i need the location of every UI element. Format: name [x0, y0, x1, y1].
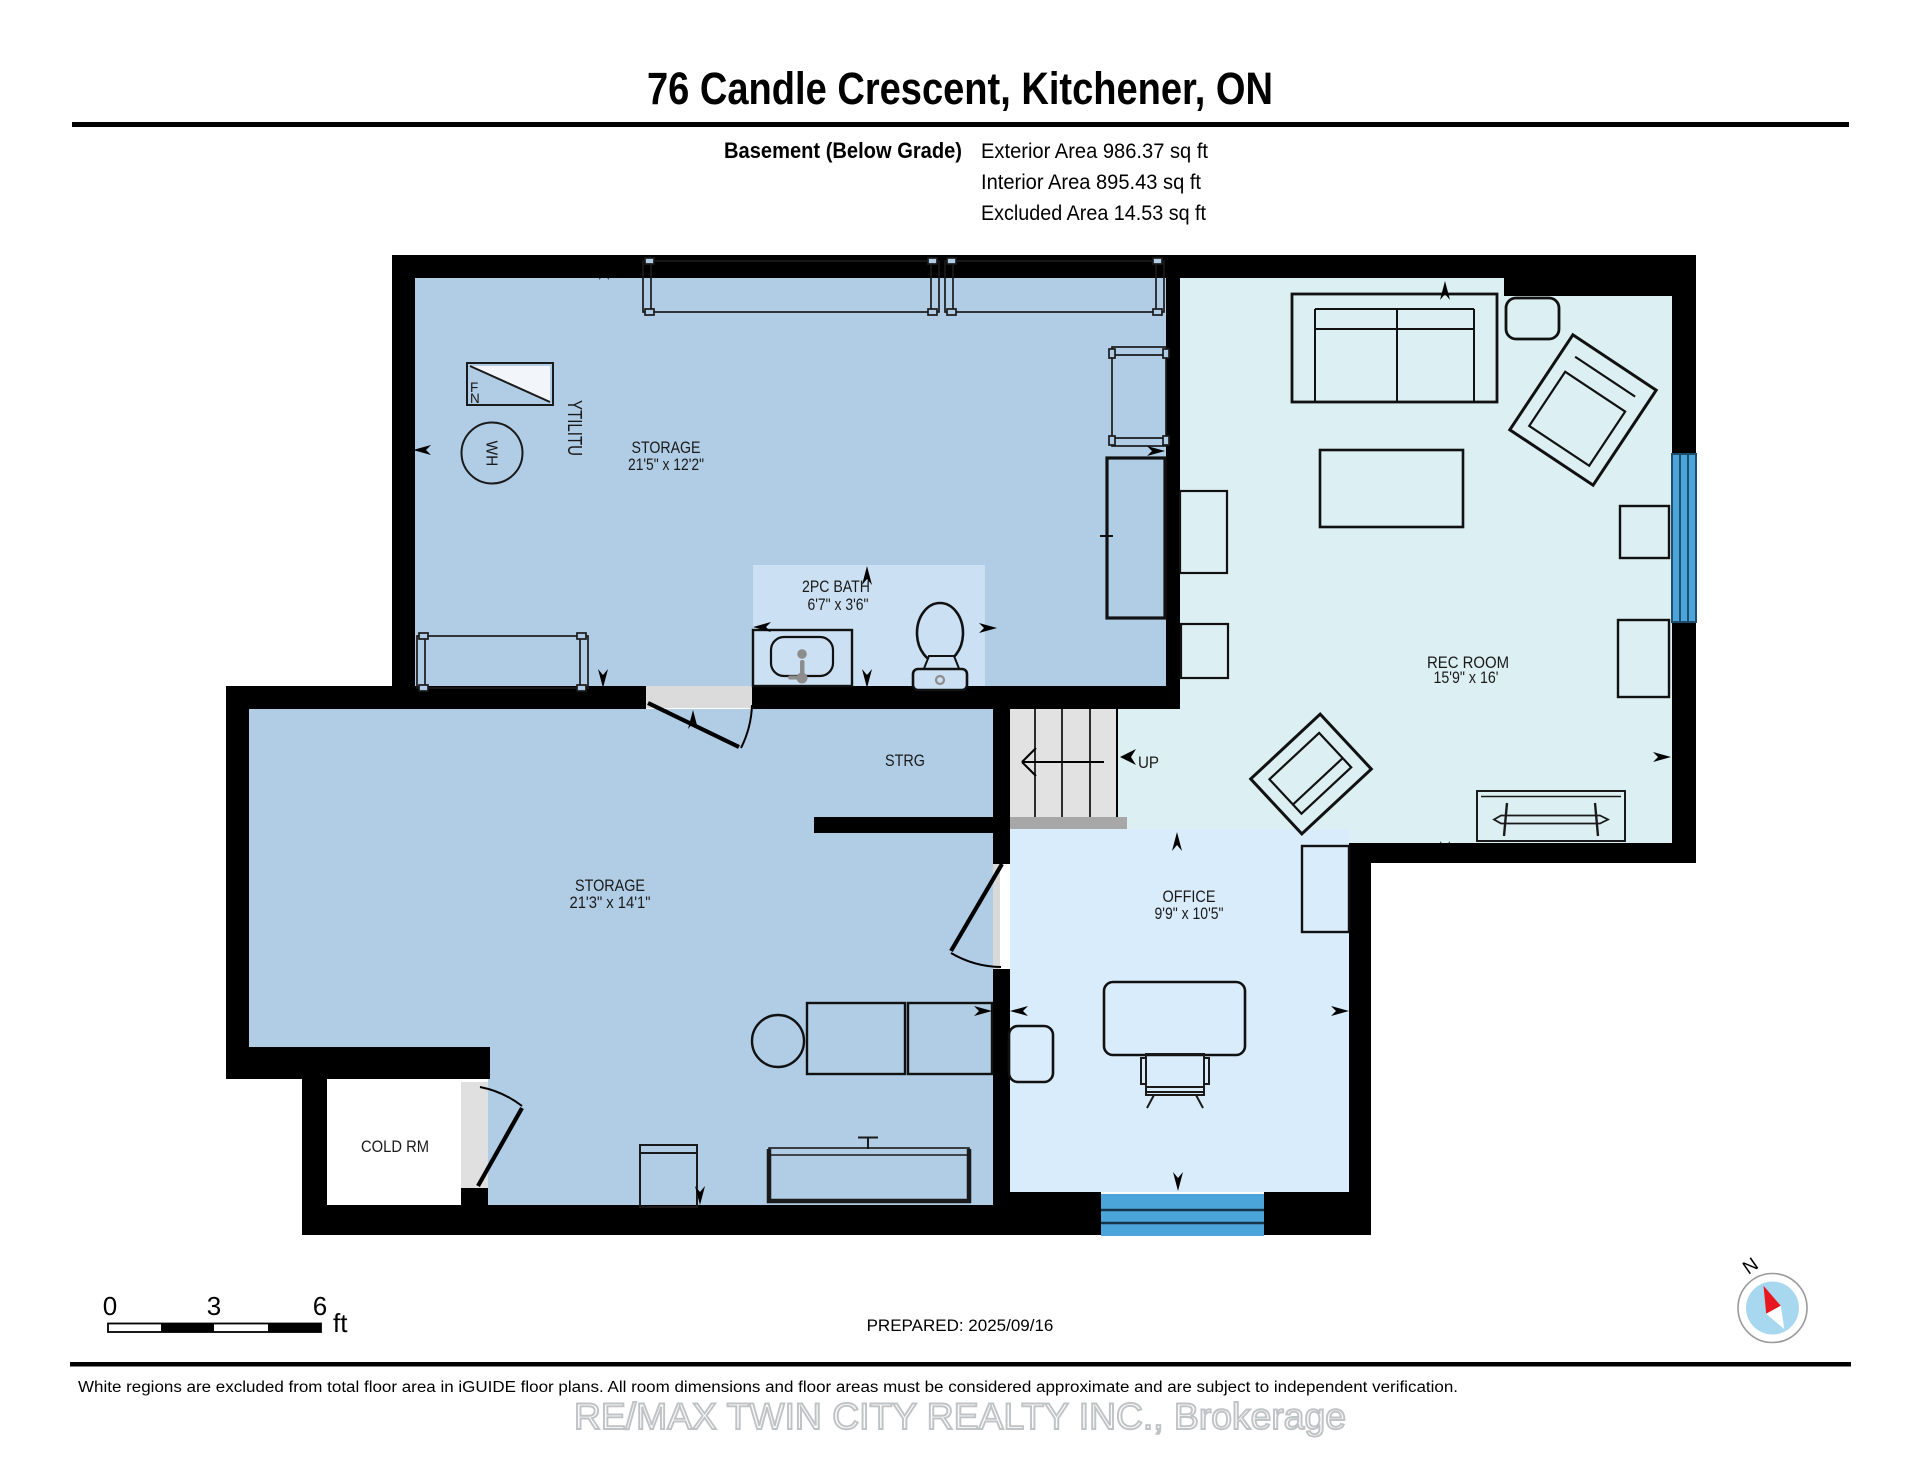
svg-text:9'9" x 10'5": 9'9" x 10'5": [1155, 904, 1224, 923]
svg-text:UP: UP: [1138, 753, 1159, 772]
svg-text:WH: WH: [483, 441, 500, 467]
svg-text:Excluded Area 14.53 sq ft: Excluded Area 14.53 sq ft: [981, 202, 1206, 225]
svg-text:6: 6: [313, 1291, 327, 1321]
svg-text:Interior Area 895.43 sq ft: Interior Area 895.43 sq ft: [981, 171, 1201, 194]
svg-text:2PC BATH: 2PC BATH: [802, 577, 870, 596]
svg-text:21'5" x 12'2": 21'5" x 12'2": [628, 455, 704, 474]
svg-text:15'9" x 16': 15'9" x 16': [1434, 668, 1499, 687]
svg-text:YTILITU: YTILITU: [563, 400, 586, 456]
svg-text:Basement (Below Grade): Basement (Below Grade): [724, 138, 962, 163]
svg-text:RE/MAX TWIN CITY REALTY INC.,: RE/MAX TWIN CITY REALTY INC., Brokerage: [574, 1396, 1346, 1437]
svg-text:N: N: [470, 391, 480, 406]
svg-text:3: 3: [207, 1291, 221, 1321]
svg-text:PREPARED: 2025/09/16: PREPARED: 2025/09/16: [867, 1316, 1054, 1335]
svg-text:76 Candle Crescent, Kitchener,: 76 Candle Crescent, Kitchener, ON: [647, 63, 1273, 114]
svg-text:ft: ft: [333, 1308, 348, 1338]
svg-text:White regions are excluded fro: White regions are excluded from total fl…: [78, 1379, 1458, 1396]
svg-text:COLD RM: COLD RM: [361, 1137, 429, 1156]
svg-text:0: 0: [103, 1291, 117, 1321]
svg-text:STRG: STRG: [885, 751, 925, 770]
svg-text:21'3" x 14'1": 21'3" x 14'1": [570, 893, 651, 912]
svg-text:6'7" x 3'6": 6'7" x 3'6": [808, 595, 869, 614]
svg-text:Exterior Area 986.37 sq ft: Exterior Area 986.37 sq ft: [981, 140, 1208, 163]
